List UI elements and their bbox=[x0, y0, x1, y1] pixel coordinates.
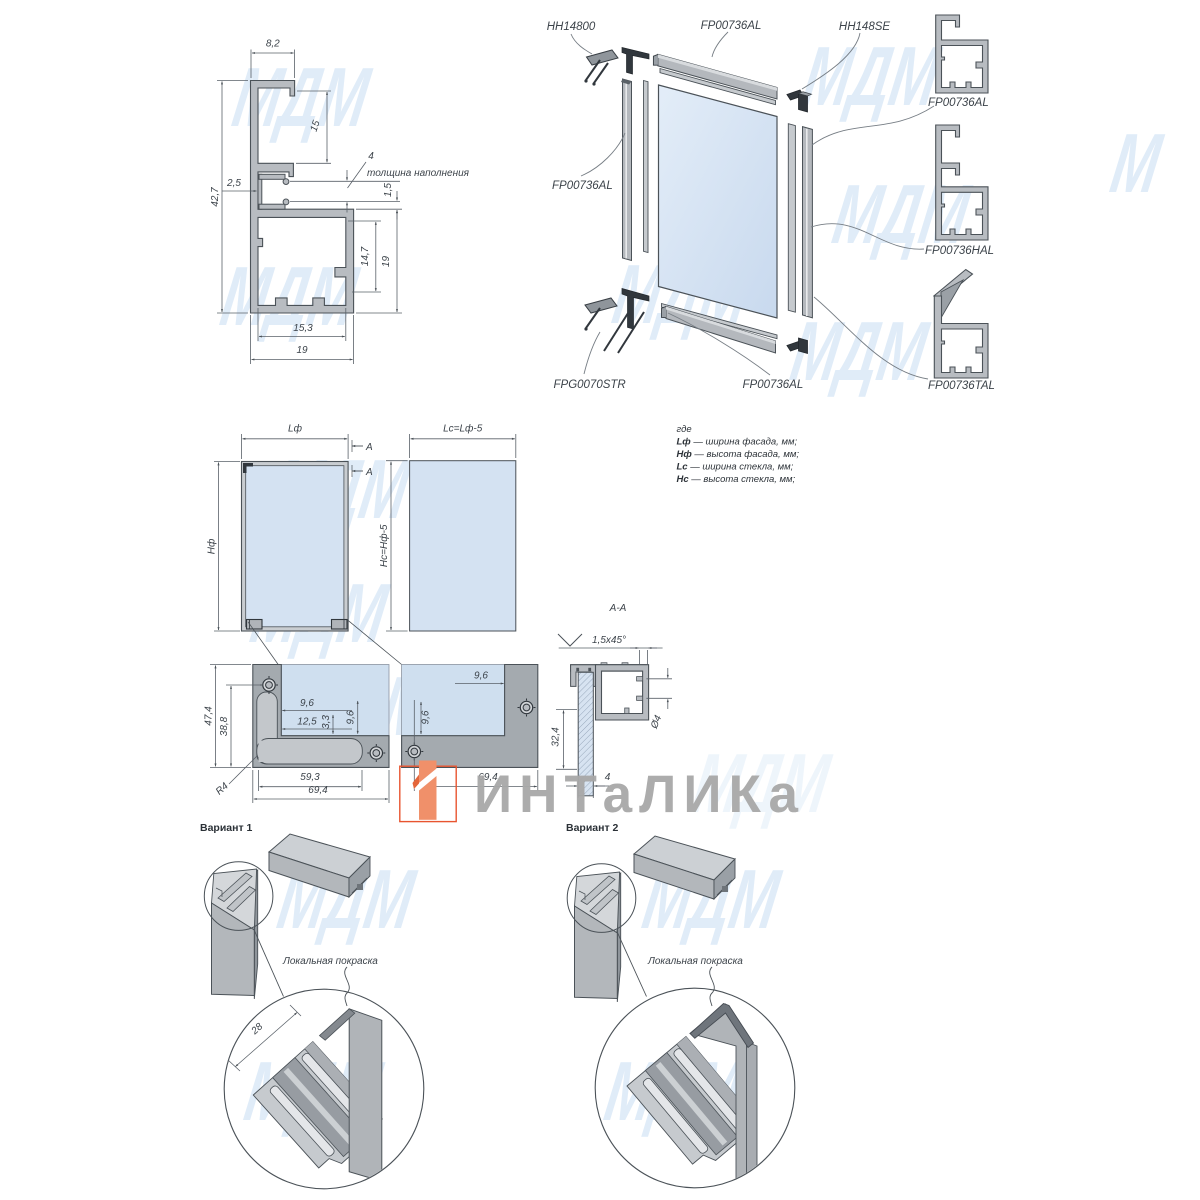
svg-text:4: 4 bbox=[368, 151, 374, 162]
svg-text:9,6: 9,6 bbox=[421, 710, 432, 724]
svg-text:FP00736HAL: FP00736HAL bbox=[925, 245, 994, 257]
svg-text:8,2: 8,2 bbox=[266, 39, 280, 50]
svg-text:Lc — ширина стекла, мм;: Lc — ширина стекла, мм; bbox=[677, 462, 794, 473]
svg-text:38,8: 38,8 bbox=[219, 716, 230, 736]
svg-text:HH148SE: HH148SE bbox=[839, 21, 890, 33]
svg-text:FP00736TAL: FP00736TAL bbox=[928, 380, 995, 392]
svg-text:FP00736AL: FP00736AL bbox=[701, 20, 762, 32]
svg-text:47,4: 47,4 bbox=[204, 706, 215, 726]
svg-text:Hф: Hф bbox=[206, 538, 218, 554]
svg-text:9,6: 9,6 bbox=[300, 698, 314, 709]
svg-text:3,3: 3,3 bbox=[321, 715, 332, 729]
svg-text:A: A bbox=[365, 442, 373, 453]
svg-text:Локальная покраска: Локальная покраска bbox=[282, 956, 378, 967]
svg-text:1,5: 1,5 bbox=[383, 183, 394, 197]
svg-text:Lc=Lф-5: Lc=Lф-5 bbox=[443, 423, 483, 435]
svg-text:19: 19 bbox=[381, 256, 392, 268]
svg-text:12,5: 12,5 bbox=[297, 717, 317, 728]
svg-text:59,3: 59,3 bbox=[300, 772, 320, 783]
svg-text:Вариант 2: Вариант 2 bbox=[566, 822, 619, 834]
svg-text:Lф: Lф bbox=[288, 423, 303, 435]
svg-text:19: 19 bbox=[296, 345, 308, 356]
svg-text:FP00736AL: FP00736AL bbox=[743, 379, 804, 391]
svg-text:32,4: 32,4 bbox=[551, 727, 562, 747]
svg-text:Hc=Hф-5: Hc=Hф-5 bbox=[378, 524, 390, 567]
svg-text:HH14800: HH14800 bbox=[547, 21, 596, 33]
svg-text:FP00736AL: FP00736AL bbox=[928, 97, 989, 109]
svg-text:МДМ: МДМ bbox=[215, 250, 365, 343]
svg-text:14,7: 14,7 bbox=[360, 246, 371, 266]
svg-text:Lф — ширина фасада, мм;: Lф — ширина фасада, мм; bbox=[677, 437, 798, 448]
svg-text:A: A bbox=[365, 467, 373, 478]
svg-text:Локальная покраска: Локальная покраска bbox=[647, 956, 743, 967]
svg-text:А-А: А-А bbox=[609, 603, 627, 614]
svg-text:69,4: 69,4 bbox=[308, 785, 328, 796]
svg-text:где: где bbox=[677, 424, 692, 435]
svg-text:9,6: 9,6 bbox=[346, 710, 357, 724]
svg-text:15,3: 15,3 bbox=[293, 323, 313, 334]
svg-text:2,5: 2,5 bbox=[226, 178, 241, 189]
svg-text:FPG0070STR: FPG0070STR bbox=[554, 379, 626, 391]
svg-text:1,5х45°: 1,5х45° bbox=[592, 635, 626, 646]
svg-text:толщина наполнения: толщина наполнения bbox=[367, 168, 470, 179]
svg-text:FP00736AL: FP00736AL bbox=[552, 180, 613, 192]
svg-text:Нф — высота фасада, мм;: Нф — высота фасада, мм; bbox=[677, 449, 800, 460]
svg-text:Вариант 1: Вариант 1 bbox=[200, 822, 253, 834]
svg-text:МДМ: МДМ bbox=[227, 51, 377, 144]
svg-text:МДМ: МДМ bbox=[797, 30, 947, 123]
svg-text:9,6: 9,6 bbox=[474, 671, 488, 682]
svg-text:42,7: 42,7 bbox=[210, 187, 221, 207]
svg-text:Нс — высота стекла, мм;: Нс — высота стекла, мм; bbox=[677, 474, 796, 485]
